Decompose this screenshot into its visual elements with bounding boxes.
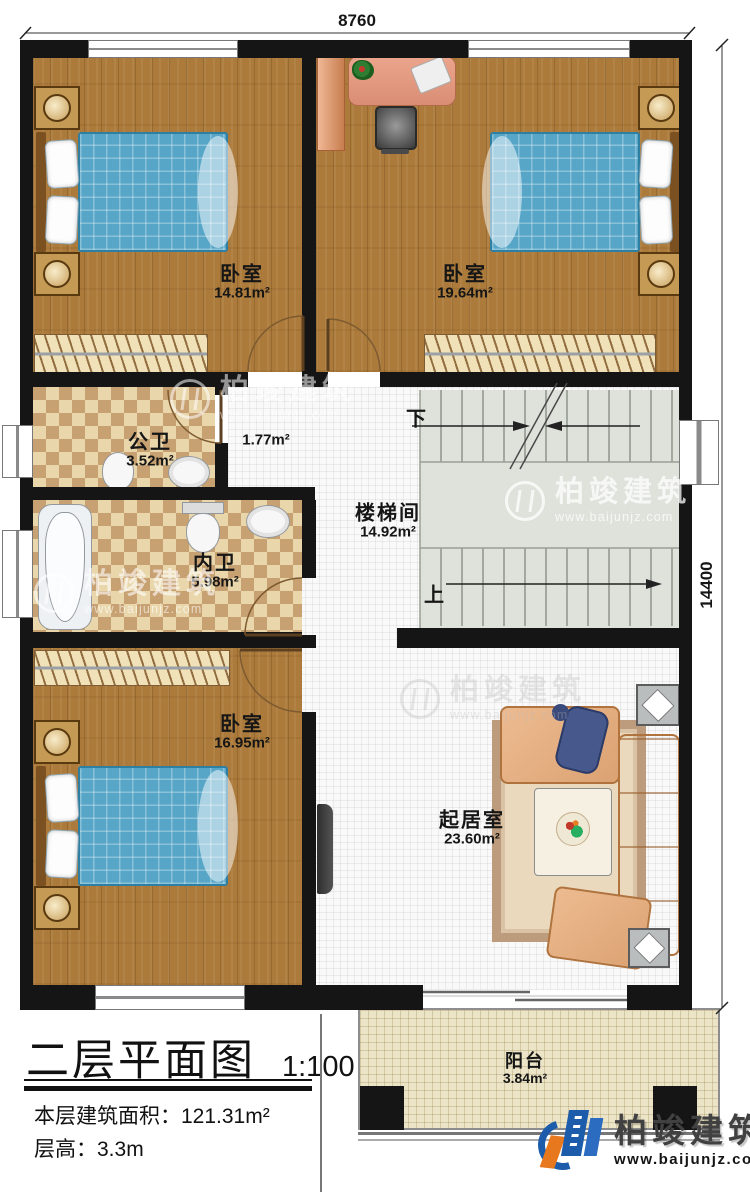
dimension-width: 8760 <box>307 11 407 31</box>
arrowhead <box>513 421 530 431</box>
room-label-bedroom-bottom-left: 卧室 16.95m² <box>214 713 270 752</box>
room-label-bedroom-top-left: 卧室 14.81m² <box>214 263 270 302</box>
room-area: 14.81m² <box>214 286 270 303</box>
brand-url: www.baijunjz.com <box>614 1151 750 1168</box>
stair-treads-lower <box>441 548 672 626</box>
room-area: 14.92m² <box>355 525 421 542</box>
floor-area-value: 121.31m² <box>181 1105 270 1128</box>
door-arc <box>248 316 303 371</box>
floor-height-value: 3.3m <box>97 1138 144 1161</box>
room-area: 1.77m² <box>242 433 290 450</box>
floor-area-line: 本层建筑面积：121.31m² <box>34 1100 270 1130</box>
title-underline <box>24 1079 312 1081</box>
room-area: 3.52m² <box>126 454 174 471</box>
door-arc <box>240 650 302 712</box>
floor-height-line: 层高：3.3m <box>34 1133 144 1163</box>
floor-height-label: 层高： <box>34 1138 97 1161</box>
room-name: 卧室 <box>437 263 493 285</box>
room-name: 阳台 <box>503 1051 547 1071</box>
brand-text: 柏竣建筑 www.baijunjz.com <box>614 1114 750 1168</box>
room-name: 内卫 <box>191 552 239 574</box>
room-label-stairwell: 楼梯间 14.92m² <box>355 502 421 541</box>
room-name: 卧室 <box>214 263 270 285</box>
plan-linework <box>0 0 750 1192</box>
room-area: 5.98m² <box>191 575 239 592</box>
room-name: 卧室 <box>214 713 270 735</box>
floor-plan-canvas: 8760 14400 卧室 14.81m² 卧室 19.64m² 公卫 3.52… <box>0 0 750 1192</box>
arrowhead <box>545 421 562 431</box>
room-label-public-bathroom: 公卫 3.52m² <box>126 431 174 470</box>
room-name: 起居室 <box>439 809 505 831</box>
room-label-ensuite-bathroom: 内卫 5.98m² <box>191 552 239 591</box>
room-name: 楼梯间 <box>355 502 421 524</box>
floor-area-label: 本层建筑面积： <box>34 1105 181 1128</box>
room-label-bedroom-top-right: 卧室 19.64m² <box>437 263 493 302</box>
room-name: 公卫 <box>126 431 174 453</box>
door-arc <box>245 578 302 635</box>
arrowhead <box>646 579 662 589</box>
door-arc <box>328 319 380 371</box>
brand-logo-icon <box>538 1104 604 1178</box>
room-label-balcony: 阳台 3.84m² <box>503 1051 547 1087</box>
brand-logo: 柏竣建筑 www.baijunjz.com <box>538 1104 750 1178</box>
stair-down-label: 下 <box>406 403 426 432</box>
room-area: 19.64m² <box>437 286 493 303</box>
title-block-divider <box>320 1014 322 1192</box>
room-label-hallway: 1.77m² <box>242 433 290 450</box>
room-label-living-room: 起居室 23.60m² <box>439 809 505 848</box>
brand-name: 柏竣建筑 <box>614 1114 750 1147</box>
room-area: 23.60m² <box>439 832 505 849</box>
room-area: 3.84m² <box>503 1071 547 1087</box>
room-area: 16.95m² <box>214 736 270 753</box>
door-arc <box>168 390 221 443</box>
stair-up-label: 上 <box>424 579 444 608</box>
title-underline-thick <box>24 1086 312 1091</box>
dimension-height: 14400 <box>697 525 717 645</box>
